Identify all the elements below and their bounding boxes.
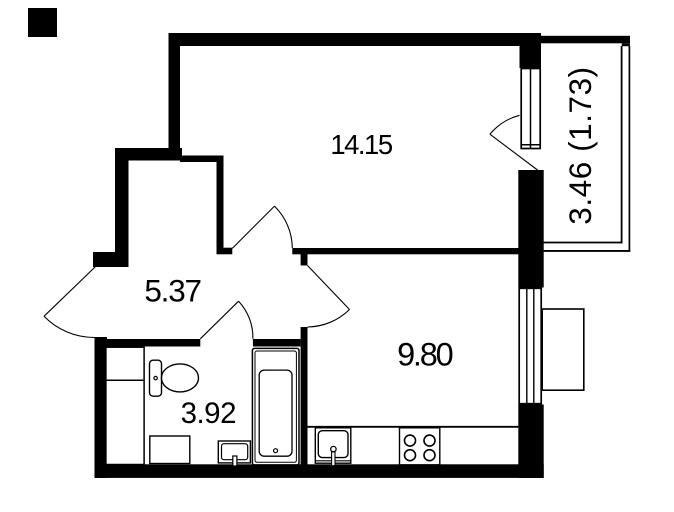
svg-text:5.37: 5.37 <box>144 273 201 309</box>
svg-text:3.46 (1.73): 3.46 (1.73) <box>562 66 598 224</box>
svg-text:14.15: 14.15 <box>330 129 393 160</box>
svg-text:9.80: 9.80 <box>397 336 453 372</box>
svg-text:3.92: 3.92 <box>181 397 236 430</box>
